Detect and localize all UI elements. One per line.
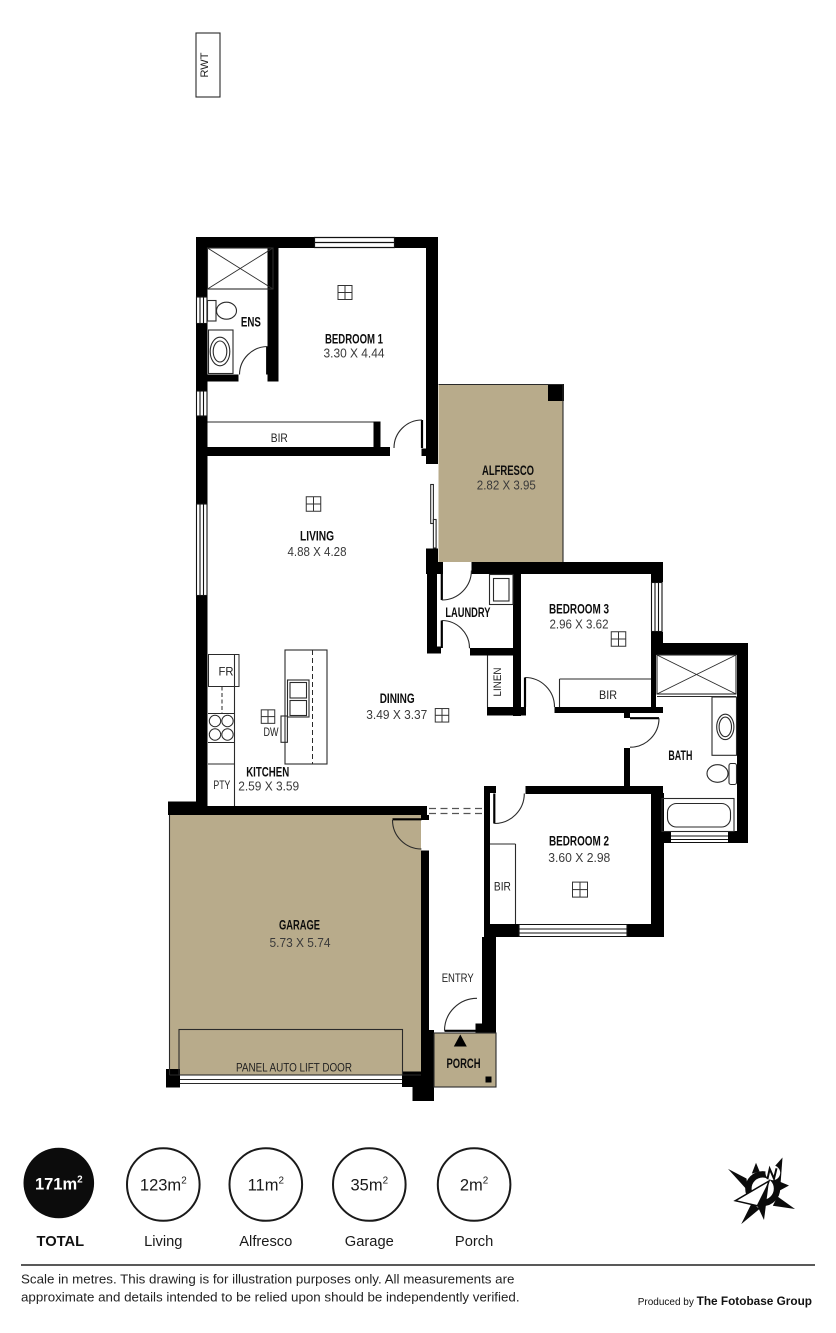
svg-text:GARAGE: GARAGE [279,918,320,933]
svg-text:BIR: BIR [494,880,511,894]
svg-text:Alfresco: Alfresco [239,1234,292,1250]
svg-text:171m2: 171m2 [35,1175,83,1194]
svg-text:FR: FR [219,665,234,679]
svg-text:ENS: ENS [241,315,261,330]
svg-text:2.82 X 3.95: 2.82 X 3.95 [477,478,536,493]
svg-text:35m2: 35m2 [350,1175,388,1194]
svg-text:KITCHEN: KITCHEN [246,764,289,779]
svg-text:PANEL AUTO LIFT DOOR: PANEL AUTO LIFT DOOR [236,1063,352,1075]
svg-text:BIR: BIR [599,688,617,702]
svg-text:PTY: PTY [213,778,230,792]
svg-text:4.88 X 4.28: 4.88 X 4.28 [288,544,347,559]
svg-text:LAUNDRY: LAUNDRY [445,605,490,620]
svg-text:DINING: DINING [380,691,415,706]
svg-text:BEDROOM 1: BEDROOM 1 [325,331,383,346]
svg-text:2.96 X 3.62: 2.96 X 3.62 [550,617,609,632]
svg-text:3.60 X 2.98: 3.60 X 2.98 [548,850,610,865]
svg-text:PORCH: PORCH [447,1056,481,1071]
svg-text:BATH: BATH [668,748,692,763]
svg-text:BEDROOM 3: BEDROOM 3 [549,602,609,617]
svg-text:2.59 X 3.59: 2.59 X 3.59 [238,779,299,794]
svg-text:Scale in metres. This drawing: Scale in metres. This drawing is for ill… [21,1272,514,1287]
svg-text:3.30 X 4.44: 3.30 X 4.44 [324,346,385,361]
svg-text:BIR: BIR [271,431,288,445]
svg-text:5.73 X 5.74: 5.73 X 5.74 [270,935,331,950]
svg-text:Porch: Porch [455,1234,493,1250]
svg-text:Produced by The Fotobase Group: Produced by The Fotobase Group [638,1294,812,1308]
svg-text:LIVING: LIVING [300,529,334,544]
svg-text:123m2: 123m2 [140,1175,187,1194]
svg-text:approximate and details intend: approximate and details intended to be r… [21,1289,520,1304]
svg-text:LINEN: LINEN [492,667,504,696]
svg-text:Garage: Garage [345,1234,394,1250]
svg-text:RWT: RWT [199,52,211,77]
svg-text:ALFRESCO: ALFRESCO [482,463,534,478]
svg-text:DW: DW [264,725,279,739]
svg-text:Living: Living [144,1234,182,1250]
svg-text:BEDROOM 2: BEDROOM 2 [549,833,609,848]
svg-text:TOTAL: TOTAL [37,1234,85,1250]
svg-text:3.49 X 3.37: 3.49 X 3.37 [366,707,427,722]
svg-text:ENTRY: ENTRY [442,973,474,985]
